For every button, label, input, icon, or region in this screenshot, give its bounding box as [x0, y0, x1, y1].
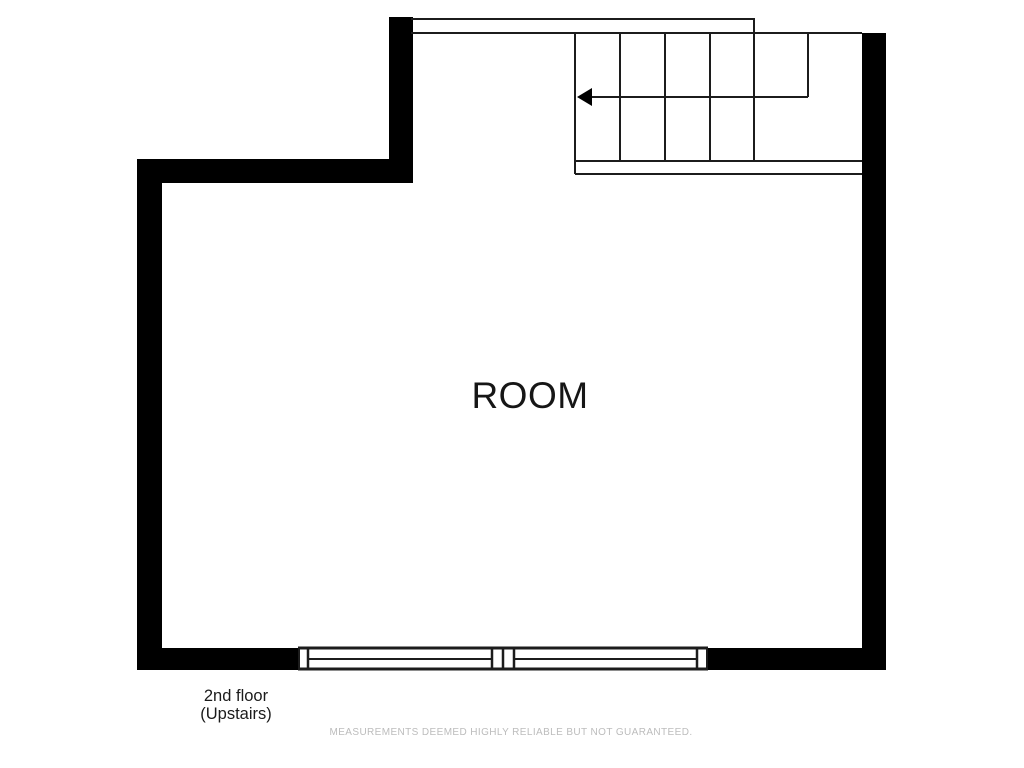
floorplan-page: ROOM 2nd floor (Upstairs) MEASUREMENTS D…: [0, 0, 1024, 768]
wall-right: [862, 33, 886, 670]
floor-label-line1: 2nd floor: [200, 687, 272, 705]
floor-label: 2nd floor (Upstairs): [200, 687, 272, 723]
wall-top-left-vertical: [389, 17, 413, 183]
floor-label-line2: (Upstairs): [200, 705, 272, 723]
wall-bottom-left: [137, 648, 298, 670]
wall-upper-notch: [137, 159, 413, 183]
room-label: ROOM: [471, 376, 588, 416]
stair-direction-arrow-head: [577, 88, 592, 106]
wall-left: [137, 159, 162, 670]
wall-bottom-right: [708, 648, 886, 670]
disclaimer-text: MEASUREMENTS DEEMED HIGHLY RELIABLE BUT …: [330, 727, 693, 739]
